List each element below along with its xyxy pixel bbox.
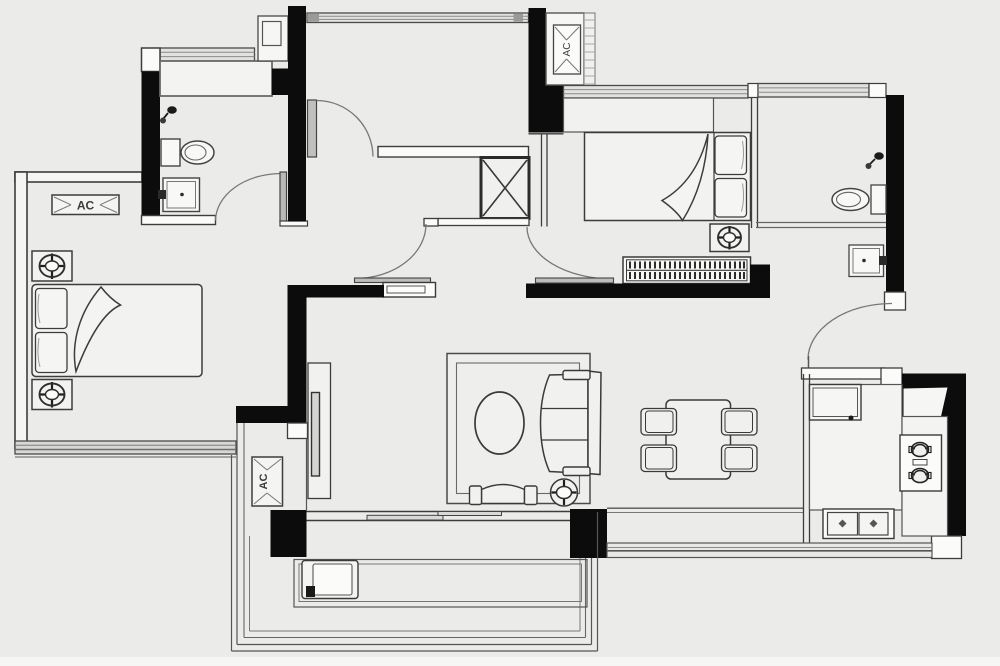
svg-text:AC: AC (77, 199, 95, 213)
svg-text:AC: AC (562, 43, 573, 57)
svg-text:AC: AC (258, 474, 270, 490)
